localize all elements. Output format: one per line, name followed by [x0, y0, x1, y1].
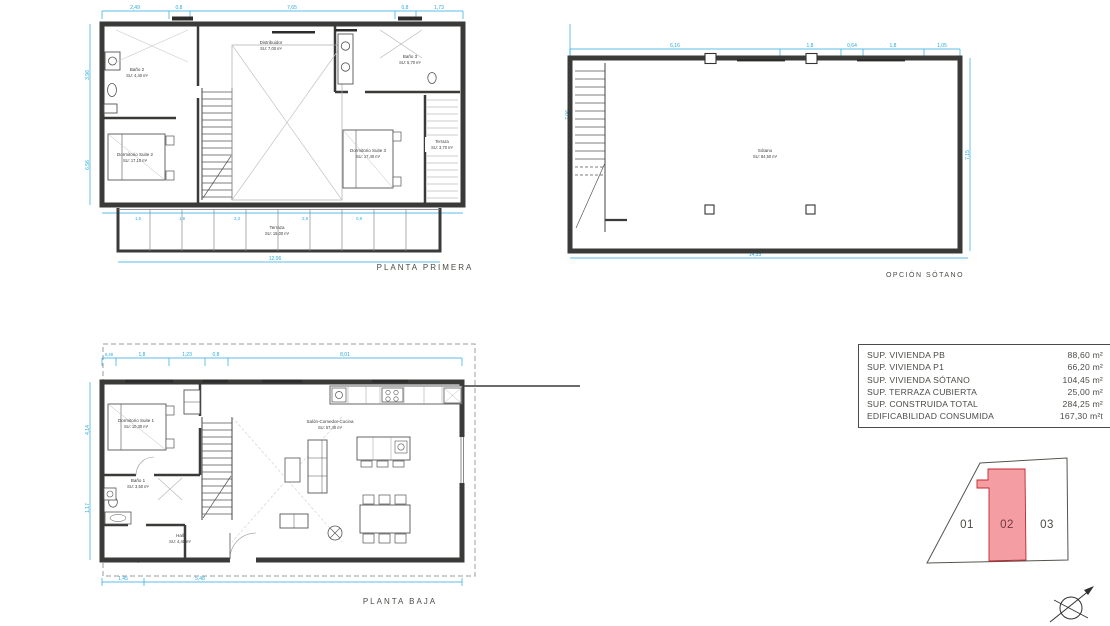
dim-label: 12,06 [269, 256, 282, 262]
dim-label: 5,48 [195, 576, 205, 582]
parcel-label-01: 01 [960, 519, 974, 531]
dim-label: 6,56 [85, 160, 91, 170]
room-area: SU: 3,50 m² [127, 484, 149, 489]
table-row: SUP. VIVIENDA P1 66,20 m² [867, 361, 1103, 373]
room-name: Hall [176, 533, 184, 538]
floor-plan-sheet: 2,49 0,8 7,65 0,8 1,73 3,96 6,56 7,06 1,… [0, 0, 1110, 626]
dim-label: 0,8 [176, 5, 183, 11]
plan-title-opcion-sotano: OPCIÓN SÓTANO [886, 270, 964, 279]
room-area: SU: 17,40 m² [356, 154, 381, 159]
dim-label: 7,65 [287, 5, 297, 11]
room-name: Baño 3 [403, 54, 418, 59]
table-row: SUP. TERRAZA CUBIERTA 25,00 m² [867, 386, 1103, 398]
dim-label: 6,16 [670, 43, 680, 49]
dim-label: 2,8 [302, 216, 308, 221]
kitchen-island [357, 437, 410, 467]
dim-label: 1,5 [135, 216, 141, 221]
room-name: Terraza [435, 139, 449, 144]
table-row: EDIFICABILIDAD CONSUMIDA 167,30 m²t [867, 410, 1103, 422]
surface-summary-table: SUP. VIVIENDA PB 88,60 m² SUP. VIVIENDA … [858, 344, 1110, 428]
table-row: SUP. CONSTRUIDA TOTAL 284,25 m² [867, 398, 1103, 410]
room-area: SU: 4,40 m² [126, 73, 148, 78]
row-value: 25,00 m² [1067, 386, 1103, 398]
dim-label: 0,48 [105, 352, 114, 357]
room-area: SU: 10,30 m² [124, 424, 149, 429]
planta-baja-plan: 0,48 1,8 1,23 0,8 8,01 4,14 1,17 1,88 3,… [80, 330, 580, 626]
opcion-sotano-plan: 6,16 1,8 0,64 1,8 1,05 7,15 13,48 14,33 [555, 25, 985, 290]
bed-suite2 [108, 134, 174, 180]
row-value: 88,60 m² [1067, 349, 1103, 361]
dim-label: 0,8 [402, 5, 409, 11]
dim-label: 1,73 [434, 5, 444, 11]
row-label: SUP. VIVIENDA PB [867, 349, 945, 361]
room-name: Salón-Comedor-Cocina [306, 419, 354, 424]
room-name: Distribuidor [260, 40, 283, 45]
room-area: SU: 3,70 m² [431, 145, 453, 150]
dim-label: 1,8 [139, 352, 146, 358]
room-name: Dormitorio Suite 1 [118, 418, 155, 423]
dim-label: 7,15 [965, 150, 971, 160]
dim-label: 1,17 [85, 503, 91, 513]
row-label: SUP. TERRAZA CUBIERTA [867, 386, 977, 398]
room-name: Dormitorio Suite 2 [117, 152, 154, 157]
row-value: 167,30 m²t [1060, 410, 1103, 422]
window-lintel [737, 59, 785, 61]
row-label: SUP. CONSTRUIDA TOTAL [867, 398, 978, 410]
north-arrow-icon [1038, 578, 1110, 626]
room-area: SU: 4,40 m² [169, 539, 191, 544]
row-value: 104,45 m² [1063, 374, 1104, 386]
door-lintel [272, 31, 315, 34]
plan-title-planta-baja: PLANTA BAJA [363, 597, 437, 606]
bed-suite3 [343, 130, 401, 188]
row-value: 284,25 m² [1063, 398, 1104, 410]
dim-label: 8,01 [340, 352, 350, 358]
room-name: Baño 2 [130, 67, 145, 72]
room-name: Sótano [758, 148, 773, 153]
window-lintel [857, 59, 905, 61]
coffee-table [285, 458, 300, 482]
room-area: SU: 57,40 m² [318, 425, 343, 430]
room-area: SU: 15,00 m² [265, 231, 290, 236]
dim-label: 1,23 [182, 352, 192, 358]
row-label: EDIFICABILIDAD CONSUMIDA [867, 410, 994, 422]
stove-icon [382, 388, 403, 402]
dim-label: 1,8 [890, 43, 897, 49]
window-lintel [172, 17, 193, 21]
dim-label: 3,96 [85, 70, 91, 80]
dim-label: 2,3 [234, 216, 240, 221]
table-row: SUP. VIVIENDA PB 88,60 m² [867, 349, 1103, 361]
room-area: SU: 5,70 m² [399, 60, 421, 65]
door-lintel [335, 29, 357, 32]
room-area: SU: 7,00 m² [260, 46, 282, 51]
dim-label: 1,45 [118, 576, 128, 582]
dim-label: 0,8 [213, 352, 220, 358]
row-label: SUP. VIVIENDA SÓTANO [867, 374, 970, 386]
kitchen-counter [330, 386, 462, 404]
room-name: Dormitorio Suite 3 [350, 148, 387, 153]
row-label: SUP. VIVIENDA P1 [867, 361, 944, 373]
dining-table [360, 495, 410, 543]
parcel-label-02: 02 [1000, 519, 1014, 531]
dim-label: 1,8 [807, 43, 814, 49]
dim-label: 0,64 [847, 43, 857, 49]
parcel-label-03: 03 [1040, 519, 1054, 531]
room-name: Terraza [269, 225, 285, 230]
row-value: 66,20 m² [1067, 361, 1103, 373]
planta-primera-plan: 2,49 0,8 7,65 0,8 1,73 3,96 6,56 7,06 1,… [80, 0, 580, 292]
table-row: SUP. VIVIENDA SÓTANO 104,45 m² [867, 374, 1103, 386]
room-name: Baño 1 [131, 478, 146, 483]
dim-label: 2,49 [130, 5, 140, 11]
plan-title-planta-primera: PLANTA PRIMERA [377, 263, 474, 272]
room-area: SU: 17,10 m² [123, 158, 148, 163]
dim-label: 0,8 [356, 216, 362, 221]
window-lintel [398, 17, 422, 21]
dim-label: 4,14 [85, 425, 91, 435]
room-area: SU: 84,50 m² [753, 154, 778, 159]
parcel-key-diagram: 01 02 03 [925, 448, 1110, 580]
dim-label: 1,05 [937, 43, 947, 49]
